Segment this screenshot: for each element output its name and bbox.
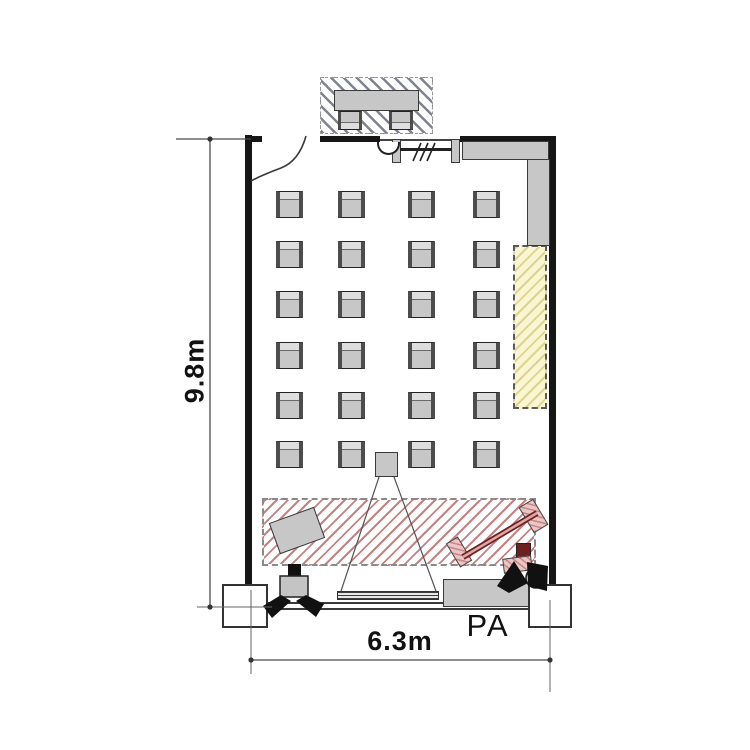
- chair: [276, 291, 303, 318]
- window-glazing-marks: [413, 143, 435, 161]
- chair: [408, 291, 435, 318]
- chair: [338, 191, 365, 218]
- pa-label: PA: [448, 608, 528, 644]
- chair: [276, 392, 303, 419]
- chair: [408, 441, 435, 468]
- projection-screen-icon: [337, 591, 439, 600]
- wall-counter-icon: [527, 159, 550, 246]
- chair: [338, 291, 365, 318]
- booth-chair: [389, 111, 413, 130]
- chair: [408, 392, 435, 419]
- booth-desk: [334, 90, 419, 111]
- chair: [338, 392, 365, 419]
- chair: [408, 342, 435, 369]
- pa-table-icon: [443, 579, 532, 607]
- chair: [408, 191, 435, 218]
- wall-left: [245, 135, 252, 585]
- height-dimension-label: 9.8m: [180, 336, 211, 406]
- chair: [473, 191, 500, 218]
- wall-counter-icon: [462, 141, 549, 160]
- chair: [408, 241, 435, 268]
- equipment-pad: [502, 555, 533, 573]
- chair: [276, 342, 303, 369]
- chair: [338, 342, 365, 369]
- chair: [338, 241, 365, 268]
- floor-plan: 9.8m 6.3m PA: [0, 0, 750, 750]
- wall-right: [549, 141, 556, 585]
- width-dimension-label: 6.3m: [340, 626, 460, 657]
- chair: [276, 441, 303, 468]
- chair: [473, 241, 500, 268]
- column-footing-left: [222, 584, 268, 628]
- chair: [276, 241, 303, 268]
- column-footing-right: [528, 584, 572, 628]
- storage-area: [513, 245, 547, 409]
- wall-top-segment: [320, 136, 380, 142]
- chair: [473, 291, 500, 318]
- chair: [276, 191, 303, 218]
- window-post: [451, 139, 460, 163]
- window-sill: [400, 148, 452, 151]
- wall-top-segment: [245, 136, 262, 142]
- entrance-door-icon: [251, 136, 306, 181]
- chair: [338, 441, 365, 468]
- booth-chair: [338, 111, 362, 130]
- chair: [473, 342, 500, 369]
- projector-icon: [375, 452, 398, 477]
- chair: [473, 441, 500, 468]
- chair: [473, 392, 500, 419]
